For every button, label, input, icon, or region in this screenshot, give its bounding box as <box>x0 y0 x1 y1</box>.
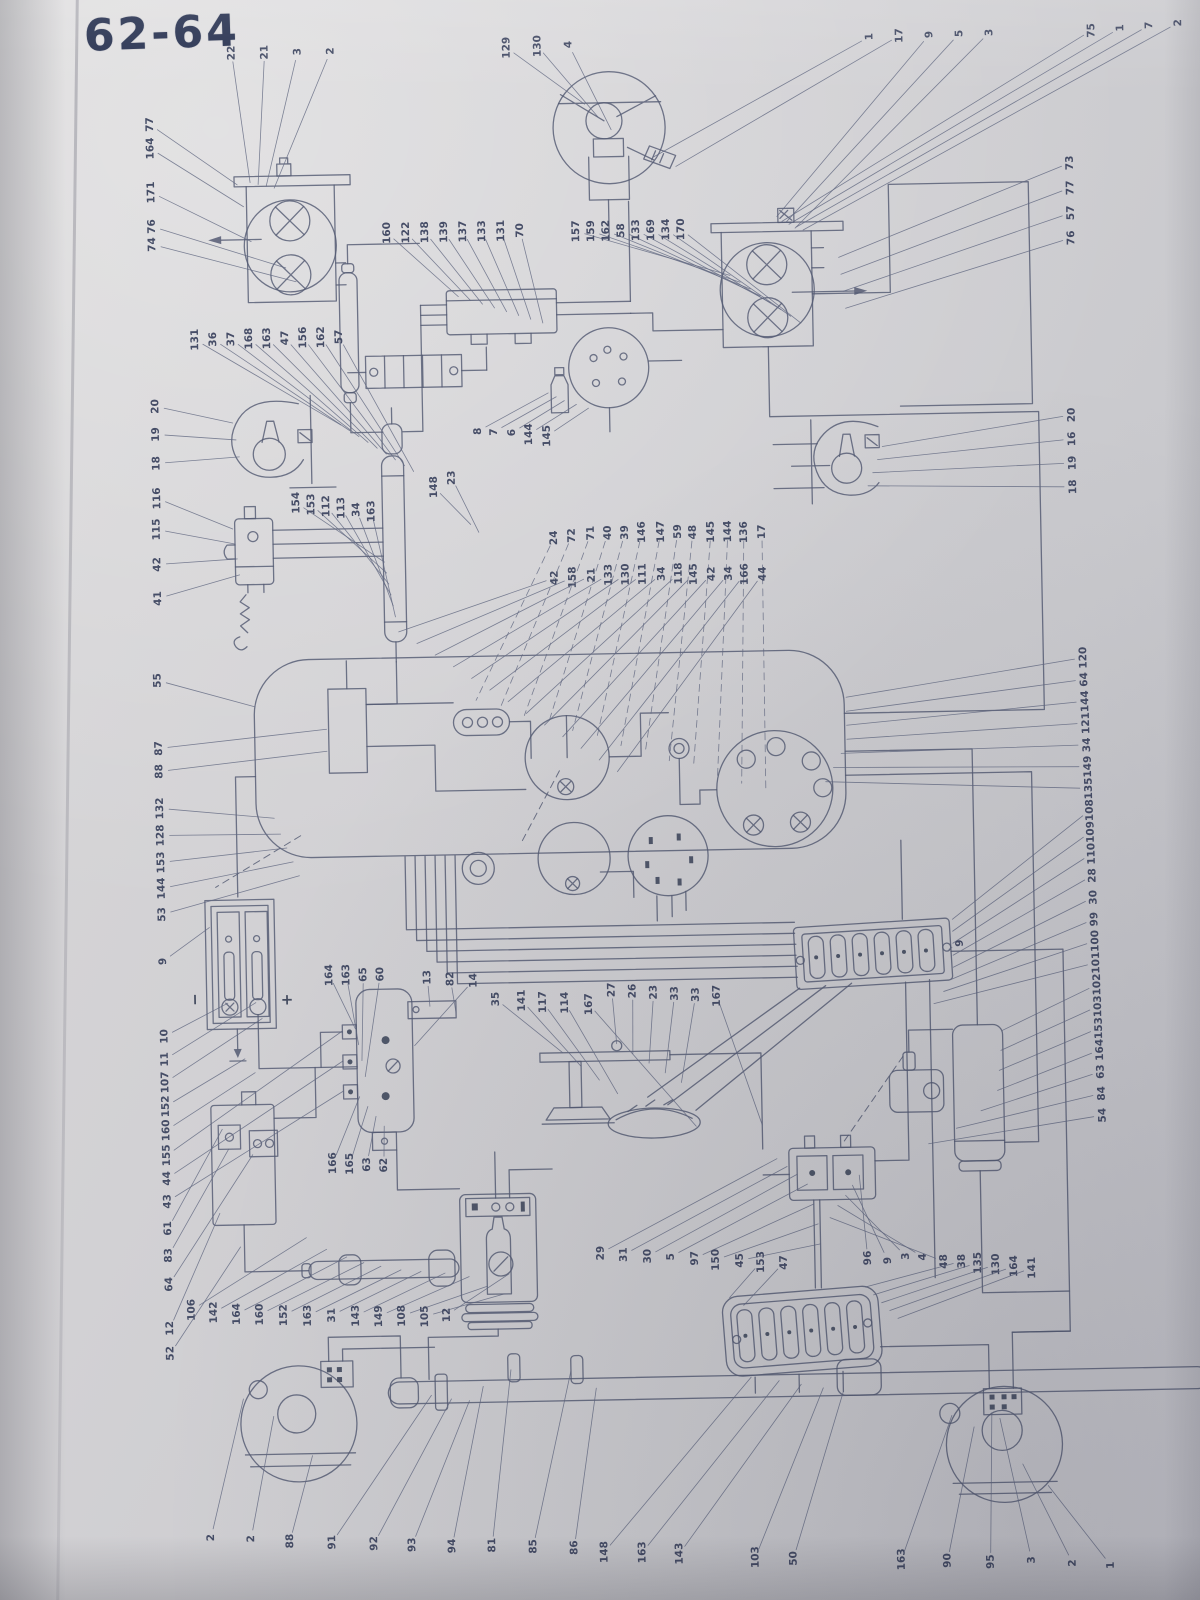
callout-leader <box>428 986 430 1006</box>
callout-label: 129 <box>500 37 512 59</box>
callout-leader <box>413 1401 472 1537</box>
ring-indicator <box>462 852 495 885</box>
callout-leader <box>173 1073 256 1126</box>
callout-leader <box>504 239 531 320</box>
callout-label: 143 <box>673 1543 685 1565</box>
callout-label: 37 <box>225 332 237 347</box>
callout-label: 143 <box>350 1305 362 1327</box>
callout-label: 117 <box>537 991 549 1013</box>
callout-leader <box>172 1019 263 1078</box>
callout-leader <box>166 530 235 546</box>
callout-label: 163 <box>895 1548 907 1570</box>
callout-label: 65 <box>357 967 369 982</box>
callout-label: 150 <box>710 1249 722 1271</box>
callout-label: 1 <box>1114 24 1126 32</box>
callout-label: 147 <box>655 521 667 543</box>
callout-label: 152 <box>278 1304 290 1326</box>
callout-label: 144 <box>722 520 734 542</box>
callout-leader <box>291 1456 314 1533</box>
speedometer-gauge <box>524 715 610 801</box>
callout-label: 63 <box>361 1157 373 1172</box>
callout-label: 148 <box>598 1541 610 1563</box>
callout-leader <box>702 1204 815 1255</box>
callout-label: 77 <box>1064 180 1076 195</box>
callout-label: 39 <box>619 525 631 540</box>
callout-label: 16 <box>1066 431 1078 446</box>
callout-leader <box>160 227 285 271</box>
callout-label: 153 <box>305 493 317 515</box>
callout-leader <box>291 1266 382 1311</box>
callout-label: 164 <box>1008 1255 1020 1277</box>
callout-label: 112 <box>320 495 332 517</box>
callout-leader <box>724 1224 819 1257</box>
callout-leader <box>451 1386 486 1537</box>
callout-label: 171 <box>145 181 157 203</box>
callout-label: 118 <box>672 562 684 584</box>
callout-label: 93 <box>406 1537 418 1552</box>
callout-label: 149 <box>373 1305 385 1327</box>
callout-label: 7 <box>488 428 500 436</box>
callout-label: 163 <box>636 1541 648 1563</box>
callout-leader <box>889 1269 1006 1310</box>
callout-leader <box>774 41 927 216</box>
callout-label: 84 <box>1096 1086 1108 1101</box>
callout-label: 92 <box>368 1536 380 1551</box>
fuse-strip <box>347 354 487 389</box>
callout-label: 128 <box>154 824 166 846</box>
callout-label: 113 <box>335 497 347 519</box>
callout-label: 170 <box>675 218 687 240</box>
callout-label: 107 <box>159 1071 171 1093</box>
callout-label: 19 <box>1066 455 1078 470</box>
callout-label: 165 <box>344 1153 356 1175</box>
callout-label: 77 <box>144 117 156 132</box>
callout-leader <box>256 61 267 184</box>
callout-leader <box>997 1053 1092 1090</box>
callout-label: 108 <box>396 1305 408 1327</box>
callout-label: 96 <box>862 1251 874 1266</box>
callout-label: 1 <box>863 33 875 41</box>
callout-leader <box>165 457 239 463</box>
callout-label: 134 <box>660 219 672 241</box>
callout-label: 82 <box>444 971 456 986</box>
callout-label: 10 <box>158 1029 170 1044</box>
callout-leader <box>648 1001 654 1063</box>
callout-label: 48 <box>938 1254 950 1269</box>
callout-leader <box>928 1117 1094 1144</box>
callout-label: 70 <box>514 223 526 238</box>
condenser-capsule <box>338 243 423 433</box>
callout-leader <box>173 1059 246 1102</box>
callout-label: 41 <box>152 591 164 606</box>
callout-label: 94 <box>446 1539 458 1554</box>
pill-connector <box>453 709 509 736</box>
callout-label: 156 <box>297 327 309 349</box>
callout-label: 3 <box>292 48 304 56</box>
callout-leader <box>497 544 572 708</box>
callout-label: 131 <box>495 220 507 242</box>
callout-label: 120 <box>1077 647 1089 669</box>
callout-label: 169 <box>645 219 657 241</box>
callout-leader <box>607 1377 754 1545</box>
callout-leader <box>743 1269 778 1305</box>
callout-labels: 2221321291304117953751727716417176741313… <box>139 19 1200 1587</box>
indicator-lamp <box>669 738 689 758</box>
callout-label: 3 <box>1026 1556 1038 1564</box>
callout-leader <box>164 407 232 424</box>
callout-label: 23 <box>446 470 458 485</box>
callout-label: 2 <box>205 1534 217 1542</box>
callout-label: 146 <box>636 521 648 543</box>
callout-label: 23 <box>648 985 660 1000</box>
callout-label: 2 <box>245 1535 257 1543</box>
callout-label: 155 <box>161 1144 173 1166</box>
callout-label: 5 <box>665 1253 677 1261</box>
callout-label: 91 <box>326 1535 338 1550</box>
callout-label: 122 <box>400 222 412 244</box>
callout-leader <box>950 816 1084 919</box>
callout-leader <box>171 1149 230 1247</box>
callout-label: 152 <box>160 1095 172 1117</box>
callout-label: 162 <box>600 220 612 242</box>
callout-leader <box>951 859 1085 944</box>
callout-leader <box>490 1370 514 1536</box>
callout-label: 57 <box>333 329 345 344</box>
callout-label: 99 <box>1088 912 1100 927</box>
callout-leader <box>166 681 254 708</box>
callout-label: 167 <box>711 985 723 1007</box>
callout-label: 81 <box>486 1538 498 1553</box>
callout-label: 58 <box>615 223 627 238</box>
callout-label: 36 <box>207 332 219 347</box>
callout-leader <box>335 1097 361 1155</box>
callout-label: 45 <box>734 1253 746 1268</box>
callout-label: 132 <box>154 797 166 819</box>
callout-label: 144 <box>1079 690 1091 712</box>
callout-label: 34 <box>656 566 668 581</box>
dimmer-switch <box>540 1038 763 1153</box>
callout-leader <box>720 1003 763 1125</box>
callout-label: 106 <box>186 1299 198 1321</box>
callout-leader <box>1000 1010 1090 1050</box>
callout-label: 73 <box>1064 155 1076 170</box>
callout-leader <box>166 559 237 564</box>
callout-label: 6 <box>506 429 518 437</box>
stoplight-switch <box>223 504 385 650</box>
callout-leader <box>168 729 327 747</box>
callout-label: 87 <box>153 741 165 756</box>
callout-label: 18 <box>150 456 162 471</box>
callout-label: 60 <box>374 967 386 982</box>
parking-lamp-right <box>773 419 881 505</box>
callout-leader <box>394 238 459 298</box>
generator <box>239 1335 437 1483</box>
callout-leader <box>596 581 743 760</box>
callout-label: 131 <box>189 329 201 351</box>
callout-label: 7 <box>1143 22 1155 30</box>
callout-leader <box>203 342 341 428</box>
callout-label: 74 <box>146 237 158 252</box>
callout-label: 102 <box>1091 973 1103 995</box>
callout-leader <box>1000 1418 1030 1552</box>
callout-label: 90 <box>942 1553 954 1568</box>
callout-leader <box>524 580 675 714</box>
callout-label: 22 <box>225 46 237 61</box>
callout-leader <box>980 1074 1093 1110</box>
callout-label: 2 <box>1172 19 1184 27</box>
callout-label: 108 <box>1084 799 1096 821</box>
callout-leader <box>346 515 391 596</box>
callout-label: 85 <box>527 1539 539 1554</box>
callout-leader <box>554 408 589 431</box>
callout-leader <box>486 239 519 316</box>
callout-leader <box>778 35 1087 221</box>
callout-label: 136 <box>738 521 750 543</box>
callout-leader <box>233 62 250 183</box>
callout-leader <box>947 1427 976 1552</box>
callout-label: 18 <box>1067 479 1079 494</box>
callout-label: 164 <box>1094 1039 1106 1061</box>
callout-leader <box>682 1384 805 1546</box>
callout-leader <box>951 837 1085 931</box>
callout-label: 40 <box>602 525 614 540</box>
callout-label: 31 <box>326 1308 338 1323</box>
callout-label: 153 <box>1093 1017 1105 1039</box>
distributor-dome <box>608 1099 701 1139</box>
voltage-stabilizer <box>327 660 367 773</box>
callout-label: 5 <box>953 30 965 38</box>
callout-leader <box>573 52 612 131</box>
callout-label: 115 <box>151 518 163 540</box>
callout-leader <box>1048 1484 1105 1559</box>
callout-label: 3 <box>983 29 995 37</box>
callout-label: 130 <box>619 563 631 585</box>
callout-label: 42 <box>151 557 163 572</box>
callout-leader <box>956 1095 1094 1128</box>
callout-leader <box>999 1032 1092 1071</box>
callout-leader <box>833 763 1079 772</box>
callout-label: 142 <box>208 1301 220 1323</box>
callout-label: 86 <box>568 1540 580 1555</box>
callout-label: 160 <box>381 222 393 244</box>
callout-leader <box>632 1000 634 1053</box>
callout-label: 33 <box>690 987 702 1002</box>
callout-label: 88 <box>284 1534 296 1549</box>
callout-label: 24 <box>548 530 560 545</box>
callout-leader <box>456 485 479 532</box>
callout-label: 160 <box>254 1304 266 1326</box>
callout-leader <box>348 984 359 1045</box>
callout-label: 20 <box>149 399 161 414</box>
callout-leader <box>729 1269 755 1298</box>
callout-label: 47 <box>279 331 291 346</box>
round-connector <box>568 326 683 432</box>
callout-label: 61 <box>162 1221 174 1236</box>
callout-label: 11 <box>159 1052 171 1067</box>
callout-label: 53 <box>156 907 168 922</box>
callout-label: 3 <box>900 1252 912 1260</box>
callout-leader <box>652 41 864 157</box>
callout-label: 109 <box>1084 821 1096 843</box>
manual-page-photo: 62-64 <box>0 0 1200 1600</box>
callout-leader <box>799 27 1174 230</box>
callout-label: 26 <box>627 984 639 999</box>
filter-box <box>210 1068 319 1273</box>
callout-label: 28 <box>1086 868 1098 883</box>
callout-label: 163 <box>365 500 377 522</box>
callout-label: 34 <box>350 502 362 517</box>
callout-label: 9 <box>954 939 966 947</box>
harness-tube-upper <box>302 1250 460 1289</box>
callout-leader <box>659 232 781 311</box>
fuse-block-upper <box>793 918 953 990</box>
callout-label: 158 <box>567 566 579 588</box>
callout-leader <box>933 965 1088 1004</box>
callout-label: 59 <box>672 524 684 539</box>
callout-label: 9 <box>882 1257 894 1265</box>
callout-label: 164 <box>144 137 156 159</box>
callout-label: 30 <box>642 1249 654 1264</box>
callout-leader <box>440 493 470 525</box>
ground-arrow <box>229 1029 246 1061</box>
callout-leader <box>846 1194 900 1251</box>
callout-label: 43 <box>161 1194 173 1209</box>
callout-label: 1 <box>1105 1562 1117 1570</box>
callout-label: 166 <box>327 1152 339 1174</box>
callout-leader <box>165 434 236 442</box>
callout-label: 83 <box>163 1248 175 1263</box>
callout-leader <box>470 580 620 679</box>
callout-label: 57 <box>1065 205 1077 220</box>
callout-label: 44 <box>161 1171 173 1186</box>
callout-label: 17 <box>893 28 905 43</box>
callout-leader <box>412 238 470 301</box>
combination-gauge <box>537 822 610 895</box>
callout-leader <box>783 40 957 222</box>
callout-leader <box>159 195 251 244</box>
callout-label: 34 <box>723 566 735 581</box>
callout-leader <box>166 575 240 596</box>
callout-label: 20 <box>1066 407 1078 422</box>
callout-leader <box>291 343 386 456</box>
callout-label: 97 <box>689 1251 701 1266</box>
callout-leader <box>793 1391 846 1549</box>
battery-plus-label: + <box>278 993 296 1006</box>
callout-label: 19 <box>150 427 162 442</box>
callout-leader <box>416 581 566 643</box>
callout-label: 9 <box>157 958 169 966</box>
callout-label: 144 <box>155 877 167 899</box>
callout-label: 54 <box>1097 1108 1109 1123</box>
callout-label: 31 <box>618 1247 630 1262</box>
callout-leader <box>501 397 557 428</box>
callout-leader <box>449 239 495 309</box>
callout-label: 157 <box>570 220 582 242</box>
callout-leader <box>845 659 1075 697</box>
callout-label: 35 <box>490 992 502 1007</box>
callout-label: 14 <box>467 973 479 988</box>
callout-label: 2 <box>1067 1559 1079 1567</box>
callout-label: 141 <box>516 989 528 1011</box>
callout-label: 121 <box>1080 712 1092 734</box>
callout-leader <box>267 1263 365 1311</box>
callout-leader <box>521 542 591 716</box>
callout-label: 145 <box>687 563 699 585</box>
callout-label: 27 <box>606 982 618 997</box>
callout-label: 72 <box>566 528 578 543</box>
callout-leader <box>664 1002 675 1072</box>
callout-label: 162 <box>315 326 327 348</box>
callout-leader <box>383 1126 384 1156</box>
callout-leader <box>414 987 469 1045</box>
callout-label: 9 <box>923 31 935 39</box>
callout-leader <box>573 1388 599 1539</box>
callout-label: 71 <box>585 526 597 541</box>
callout-leader <box>607 1159 779 1249</box>
callout-label: 42 <box>706 566 718 581</box>
callout-leader <box>251 1416 276 1530</box>
callout-label: 75 <box>1085 23 1097 38</box>
callout-label: 64 <box>163 1277 175 1292</box>
callout-label: 88 <box>153 764 165 779</box>
callout-label: 52 <box>164 1346 176 1361</box>
callout-leader <box>548 1008 599 1081</box>
callout-label: 105 <box>419 1305 431 1327</box>
callout-leader <box>360 984 364 1061</box>
callout-leader <box>168 751 327 770</box>
callout-leader <box>503 1004 563 1054</box>
callout-label: 76 <box>1065 230 1077 245</box>
callout-label: 145 <box>541 425 553 447</box>
callout-label: 8 <box>472 428 484 436</box>
reservoir <box>888 1029 954 1112</box>
callout-label: 21 <box>258 45 270 60</box>
callout-label: 163 <box>261 327 273 349</box>
callout-label: 154 <box>290 492 302 514</box>
callout-leader <box>674 40 894 166</box>
callout-label: 44 <box>757 566 769 581</box>
parking-lamp-left <box>231 395 336 489</box>
callout-label: 135 <box>1083 777 1095 799</box>
callout-label: 130 <box>531 35 543 57</box>
callout-label: 149 <box>1082 756 1094 778</box>
callout-leader <box>543 52 598 118</box>
callout-label: 137 <box>457 220 469 242</box>
callout-label: 101 <box>1090 952 1102 974</box>
callout-leader <box>528 1006 581 1067</box>
callout-leader <box>522 239 543 324</box>
callout-label: 160 <box>160 1119 172 1141</box>
callout-label: 76 <box>146 219 158 234</box>
callout-label: 55 <box>151 673 163 688</box>
fuse-block-lower <box>721 1285 884 1394</box>
callout-label: 95 <box>985 1554 997 1569</box>
callout-label: 153 <box>155 851 167 873</box>
callout-label: 164 <box>231 1303 243 1325</box>
callout-leader <box>488 580 638 691</box>
callout-leader <box>897 1271 1024 1318</box>
callout-label: 12 <box>164 1321 176 1336</box>
callout-label: 33 <box>669 986 681 1001</box>
callout-label: 103 <box>1092 995 1104 1017</box>
callout-label: 111 <box>636 563 648 585</box>
starter <box>880 1331 1073 1505</box>
callout-label: 100 <box>1089 930 1101 952</box>
callout-label: 17 <box>756 524 768 539</box>
light-switch <box>716 730 834 848</box>
callout-leader <box>756 1388 827 1549</box>
callout-leader <box>792 30 1145 227</box>
